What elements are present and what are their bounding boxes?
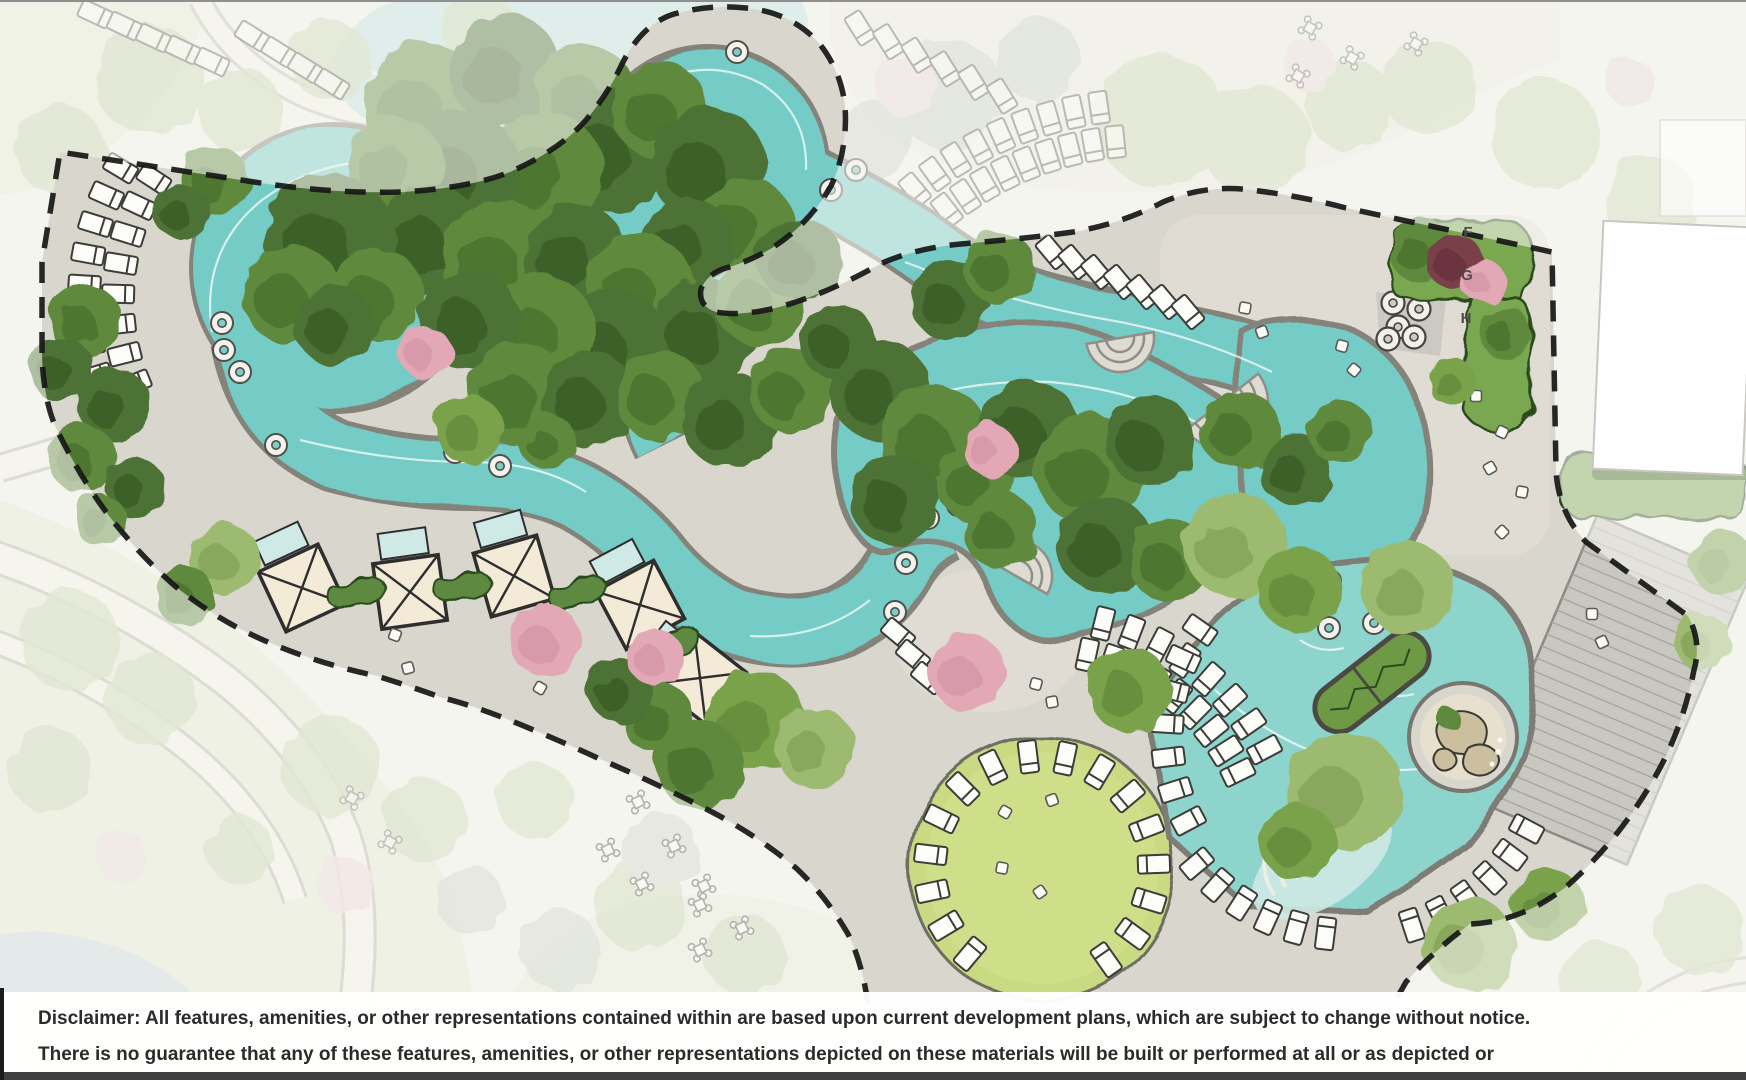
left-border [0,988,4,1080]
outside-fade-overlay [0,0,1746,1080]
disclaimer-strip: Disclaimer: All features, amenities, or … [0,992,1746,1072]
disclaimer-text: Disclaimer: All features, amenities, or … [38,1001,1543,1080]
bottom-border-bar [0,1072,1746,1080]
site-plan-canvas: F G H Disclaimer: All features, amenitie… [0,0,1746,1080]
amenity-marker-g: G [1461,267,1473,284]
amenity-marker-h: H [1461,310,1472,327]
top-border [0,0,1746,2]
amenity-marker-f: F [1463,224,1472,241]
